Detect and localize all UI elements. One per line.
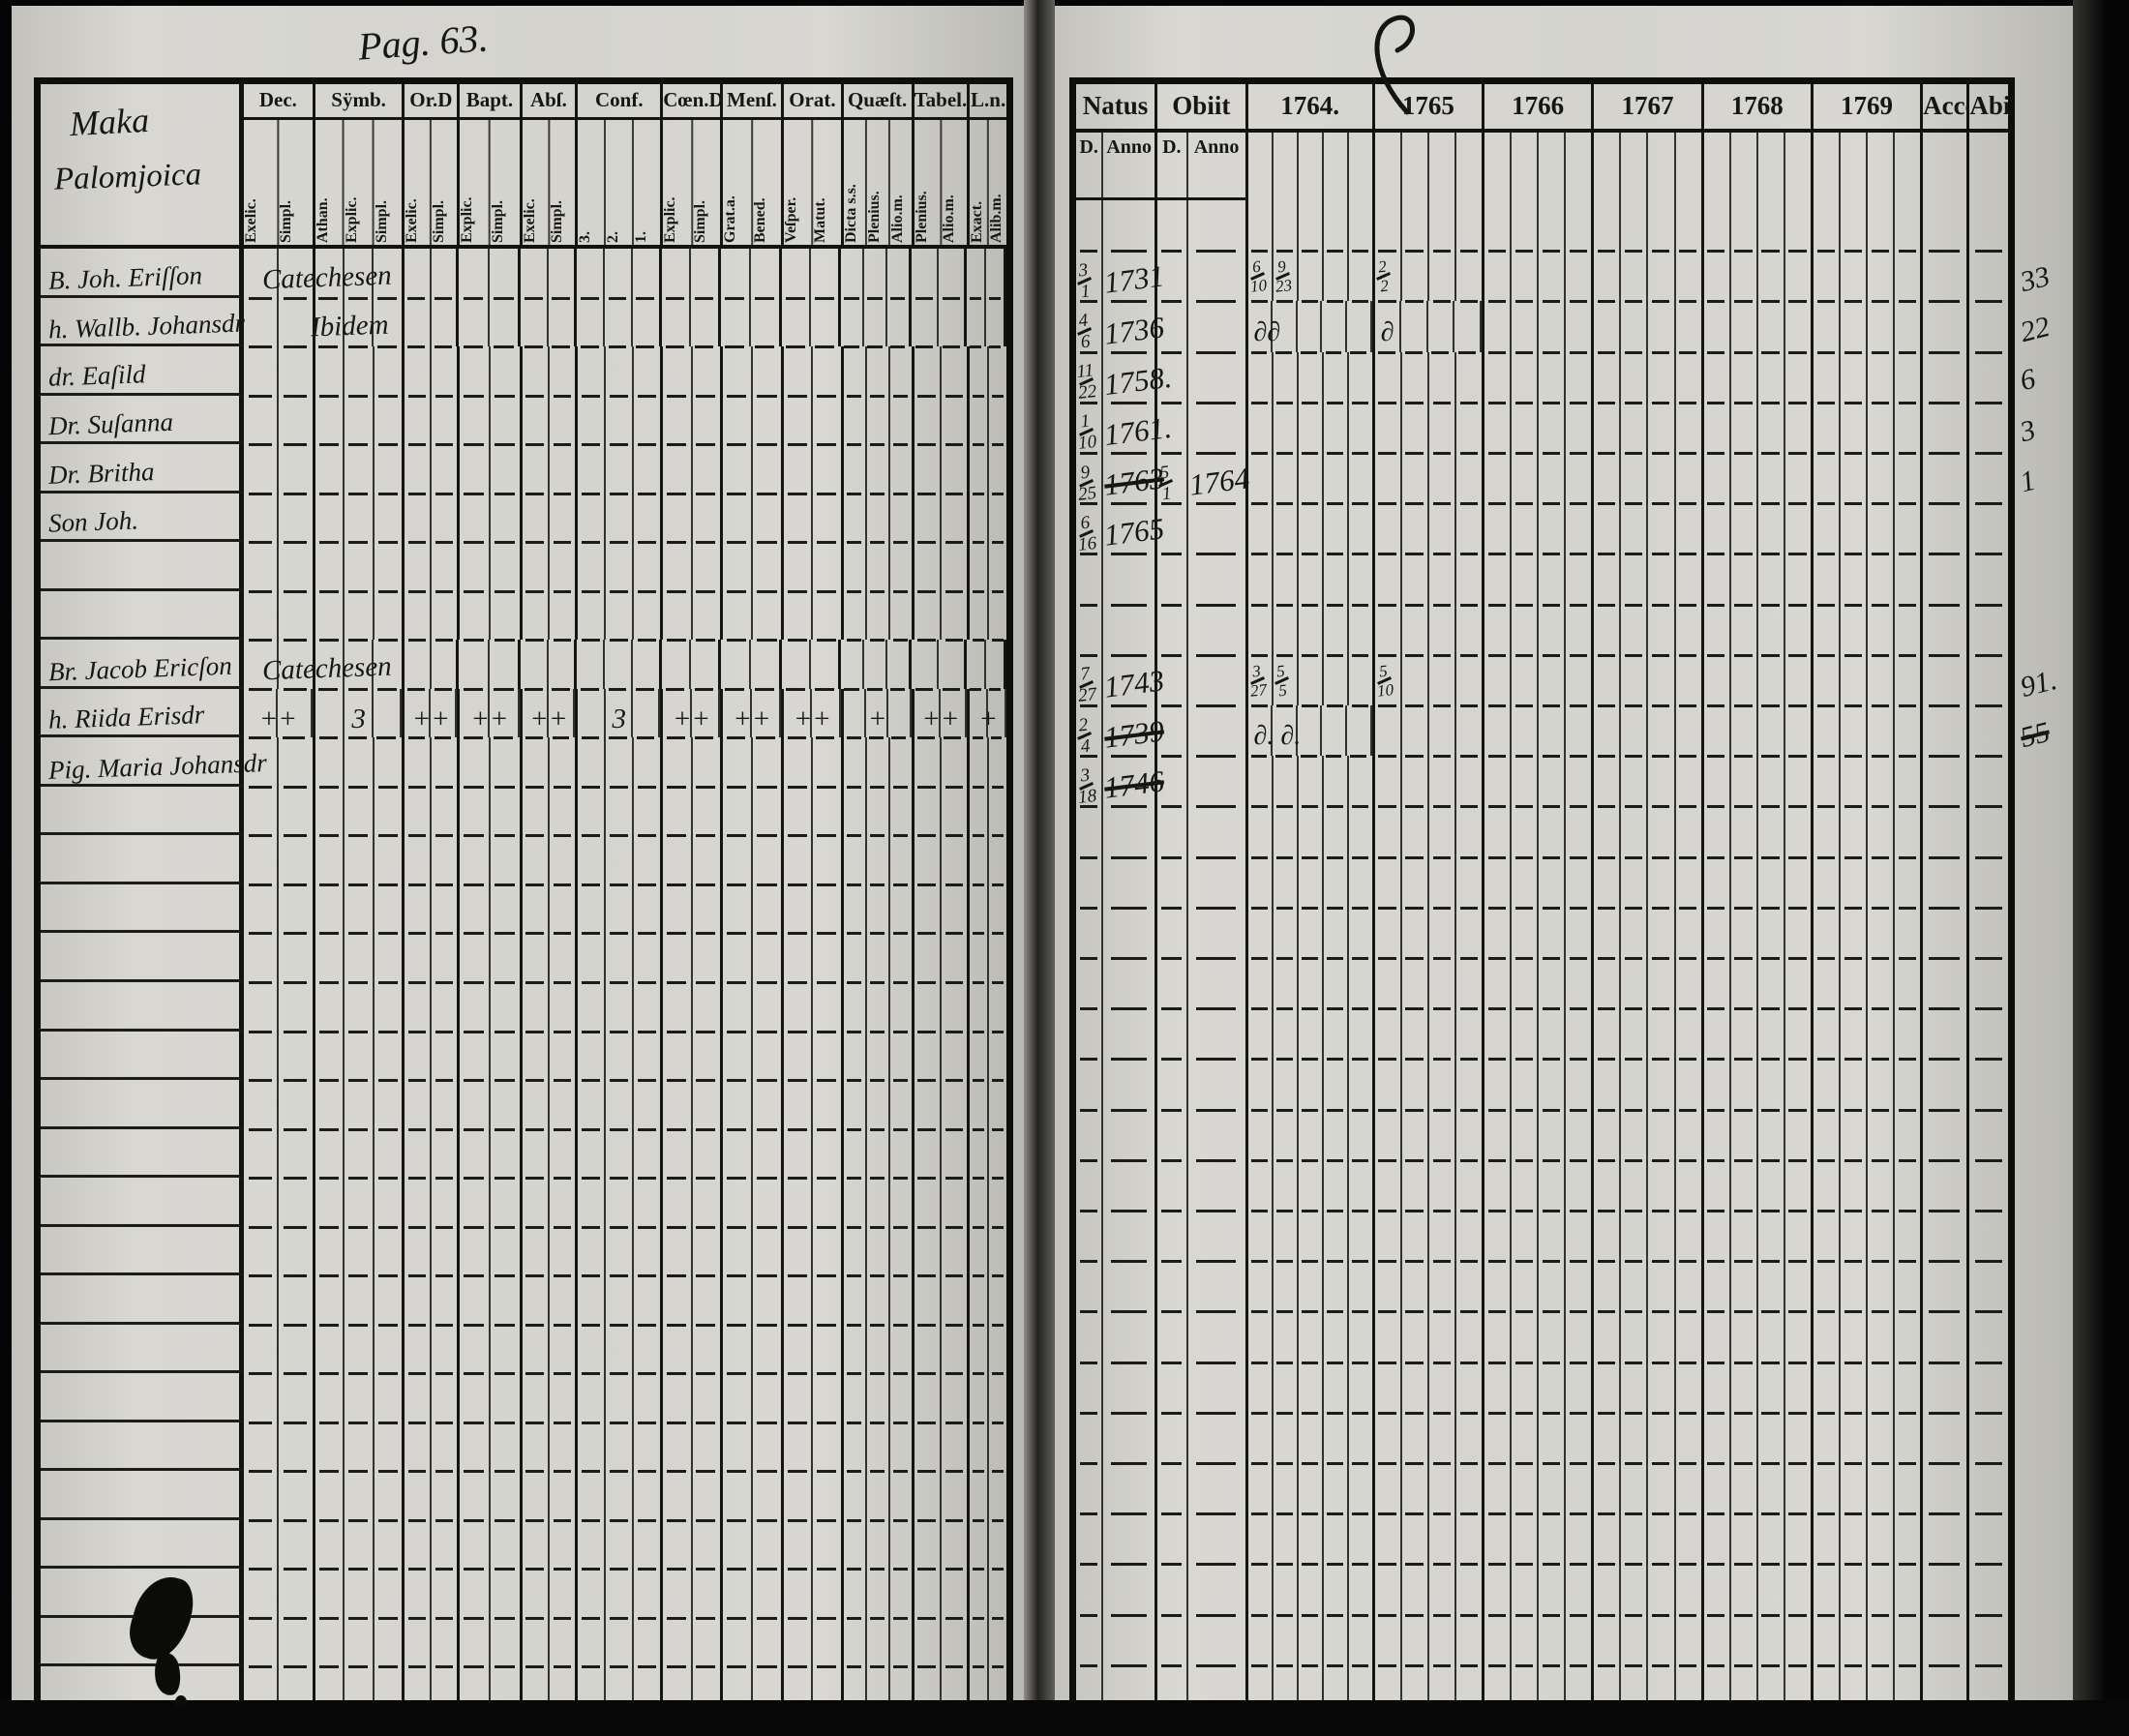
sub-cell	[1969, 1110, 2008, 1160]
group-cell	[1704, 301, 1814, 351]
sub-cell	[1539, 1311, 1566, 1362]
sub-cell	[1731, 655, 1758, 705]
sub-cell	[549, 298, 574, 347]
group-cell	[970, 1471, 1006, 1520]
sub-cell	[345, 787, 375, 836]
sub-cell	[375, 1275, 403, 1325]
group-cell: ++	[244, 689, 315, 738]
sub-cell	[989, 737, 1006, 787]
sub-cell	[1274, 1311, 1299, 1362]
sub-cell	[693, 1080, 720, 1129]
strip-subcell	[1969, 133, 2008, 200]
column-header: Menſ.	[723, 84, 781, 120]
sub-cell	[1484, 200, 1512, 251]
column-sublabel: Simpl.	[277, 120, 312, 245]
table-row	[41, 1471, 1006, 1520]
sub-cell	[1704, 1059, 1731, 1109]
sub-cell	[578, 1129, 606, 1179]
sub-cell	[1188, 1059, 1245, 1109]
sub-cell	[1566, 503, 1591, 554]
sub-cell	[1758, 1110, 1785, 1160]
group-cell	[1076, 1413, 1157, 1463]
sub-cell	[867, 1080, 890, 1129]
sub-cell	[813, 444, 840, 494]
fraction-top: 5	[1159, 464, 1170, 481]
sub-cell	[315, 346, 345, 396]
sub-cell	[915, 1178, 942, 1227]
sub-cell	[753, 1178, 781, 1227]
sub-cell	[606, 787, 634, 836]
column-header: Or.D	[405, 84, 457, 120]
sub-cell	[1814, 806, 1841, 856]
sub-cell: 1739	[1103, 705, 1154, 756]
sub-cell	[970, 542, 989, 591]
group-cell	[967, 249, 1006, 298]
sub-cell	[1785, 1615, 1811, 1665]
sub-cell	[1248, 1362, 1274, 1413]
sub-cell	[693, 1032, 720, 1081]
group-cell	[844, 1178, 915, 1227]
group-cell	[523, 1032, 579, 1081]
group-cell	[460, 444, 522, 494]
sub-cell	[1566, 1463, 1591, 1513]
sub-cell	[723, 982, 753, 1032]
sub-cell	[915, 444, 942, 494]
sub-cell	[1103, 1008, 1154, 1059]
sub-cell	[1375, 1615, 1402, 1665]
sub-cell	[1621, 1311, 1648, 1362]
sub-cell	[663, 1325, 692, 1374]
group-cell	[1594, 1110, 1703, 1160]
sub-cell	[1923, 1564, 1966, 1614]
sub-cell	[1324, 857, 1349, 908]
sub-cell	[1429, 200, 1456, 251]
sub-cell	[1349, 554, 1372, 604]
sub-cell	[1841, 1008, 1868, 1059]
sub-cell	[1512, 503, 1539, 554]
sub-cell	[691, 640, 718, 689]
fraction-bottom: 5	[1277, 682, 1287, 698]
group-cell	[1969, 1008, 2008, 1059]
table-row	[41, 1032, 1006, 1081]
sub-cell	[1566, 200, 1591, 251]
sub-cell	[970, 1569, 989, 1618]
sub-cell	[432, 494, 457, 543]
strip-subcell	[1594, 133, 1621, 200]
group-cell	[405, 737, 460, 787]
group-cell	[784, 396, 844, 445]
sub-cell	[1429, 605, 1456, 655]
ink-blot	[175, 1695, 187, 1709]
sub-cell	[1539, 301, 1566, 351]
sub-cell	[942, 787, 967, 836]
sub-cell	[1704, 301, 1731, 351]
sub-cell	[1429, 1160, 1456, 1211]
sub-cell	[315, 1471, 345, 1520]
sub-cell	[867, 884, 890, 934]
sub-cell	[460, 933, 491, 982]
sub-cell	[523, 1373, 550, 1422]
group-cell	[663, 1520, 723, 1570]
group-cell	[405, 1618, 460, 1667]
sub-cell	[753, 444, 781, 494]
sub-cell	[1841, 1413, 1868, 1463]
sub-cell	[1704, 1211, 1731, 1261]
group-cell	[784, 1227, 844, 1276]
sub-cell	[1566, 554, 1591, 604]
sub-cell	[1785, 1362, 1811, 1413]
sub-cell	[432, 396, 457, 445]
sub-cell	[523, 1422, 550, 1472]
strip-subcell	[1429, 133, 1456, 200]
sub-cell	[1566, 1160, 1591, 1211]
group-cell	[1969, 1463, 2008, 1513]
sub-cell	[1512, 1463, 1539, 1513]
group-cell	[1814, 908, 1923, 958]
sub-cell	[605, 640, 633, 689]
group-cell	[782, 298, 841, 347]
sub-cell	[1484, 1261, 1512, 1311]
group-cell	[970, 396, 1006, 445]
sub-cell	[970, 982, 989, 1032]
sub-cell	[989, 787, 1006, 836]
sub-cell	[844, 591, 867, 641]
sub-cell	[460, 1325, 491, 1374]
sub-cell	[1621, 1513, 1648, 1564]
sub-cell	[1814, 1211, 1841, 1261]
sub-cell	[491, 346, 520, 396]
sub-cell	[1512, 301, 1539, 351]
group-cell	[723, 1178, 784, 1227]
sub-cell	[1299, 806, 1324, 856]
sub-cell	[1484, 301, 1512, 351]
sub-cell	[1566, 857, 1591, 908]
sub-cell	[432, 1422, 457, 1472]
sub-cell	[989, 1520, 1006, 1570]
sub-cell	[1274, 1008, 1299, 1059]
sub-cell	[1375, 453, 1402, 503]
sub-cell	[1429, 1564, 1456, 1614]
sub-cell	[1704, 453, 1731, 503]
sub-cell	[1103, 908, 1154, 958]
sub-cell	[1594, 251, 1621, 301]
sub-cell	[279, 396, 312, 445]
sub-cell	[693, 1227, 720, 1276]
sub-cell	[1103, 1564, 1154, 1614]
group-cell	[1923, 1008, 1969, 1059]
sub-cell	[1188, 806, 1245, 856]
group-cell	[315, 1618, 405, 1667]
sub-cell	[1758, 1362, 1785, 1413]
sub-cell	[784, 737, 813, 787]
row-note: Ibidem	[310, 310, 389, 344]
sub-cell	[1785, 200, 1811, 251]
sub-cell	[1923, 605, 1966, 655]
sub-cell	[942, 1569, 967, 1618]
group-cell	[1076, 806, 1157, 856]
group-cell	[912, 640, 968, 689]
group-cell	[405, 982, 460, 1032]
group-cell	[1923, 301, 1969, 351]
sub-cell	[1248, 453, 1274, 503]
sub-cell	[1103, 1615, 1154, 1665]
sub-cell	[1566, 1311, 1591, 1362]
sub-cell	[1785, 1261, 1811, 1311]
sub-cell	[1375, 1008, 1402, 1059]
sub-cell	[1621, 705, 1648, 756]
group-cell	[1969, 301, 2008, 351]
sub-cell	[549, 249, 574, 298]
group-cell	[782, 249, 841, 298]
group-cell	[663, 737, 723, 787]
group-cell	[663, 1618, 723, 1667]
group-cell	[723, 346, 784, 396]
column-subheaders: Exelic.Simpl.	[405, 120, 457, 245]
table-row: 461736∂∂∂	[1076, 301, 2008, 351]
sub-cell	[1349, 806, 1372, 856]
sub-cell	[375, 1032, 403, 1081]
sub-cell: 1765	[1103, 503, 1154, 554]
sub-cell	[1566, 1413, 1591, 1463]
group-cell	[460, 787, 522, 836]
group-cell	[784, 835, 844, 884]
group-cell	[1969, 705, 2008, 756]
sub-cell	[315, 1373, 345, 1422]
group-cell	[1814, 655, 1923, 705]
sub-cell	[523, 1080, 550, 1129]
sub-cell	[1868, 1362, 1895, 1413]
sub-cell	[491, 737, 520, 787]
sub-cell	[1349, 1513, 1372, 1564]
sub-cell	[375, 591, 403, 641]
sub-cell	[844, 494, 867, 543]
sub-cell	[315, 787, 345, 836]
household-heading-line: Palomjoica	[53, 157, 201, 197]
sub-cell	[1157, 605, 1188, 655]
date-fraction: 610	[1247, 259, 1268, 295]
sub-cell	[550, 1373, 575, 1422]
sub-cell	[1676, 1008, 1701, 1059]
sub-cell	[1484, 1211, 1512, 1261]
group-cell	[1484, 655, 1594, 705]
column-subheaders: Grat.a.Bened.	[723, 120, 781, 245]
sub-cell	[989, 1275, 1006, 1325]
name-cell	[41, 787, 244, 836]
sub-cell	[405, 298, 432, 347]
group-cell	[244, 1275, 315, 1325]
sub-cell	[721, 640, 751, 689]
sub-cell	[405, 249, 432, 298]
sub-cell	[1429, 1211, 1456, 1261]
table-row	[41, 884, 1006, 934]
sub-cell	[1456, 1564, 1482, 1614]
sub-cell	[432, 1129, 457, 1179]
sub-cell	[813, 1569, 840, 1618]
sub-cell	[1157, 908, 1188, 958]
sub-cell	[1157, 958, 1188, 1008]
group-cell	[1076, 1362, 1157, 1413]
sub-cell	[606, 494, 634, 543]
sub-cell	[844, 1471, 867, 1520]
sub-cell	[1456, 1513, 1482, 1564]
strip-subcell	[1402, 133, 1429, 200]
sub-cell	[1731, 1110, 1758, 1160]
sub-cell	[1429, 453, 1456, 503]
sub-cell	[1895, 1513, 1920, 1564]
sub-cell	[1322, 705, 1347, 756]
sub-cell	[890, 1325, 912, 1374]
sub-cell	[634, 542, 660, 591]
sub-cell: 1743	[1103, 655, 1154, 705]
sub-cell	[1923, 1059, 1966, 1109]
group-cell	[1248, 1211, 1375, 1261]
group-cell	[460, 396, 522, 445]
sub-cell	[753, 542, 781, 591]
strip-group	[1594, 133, 1703, 200]
group-cell: ++	[460, 689, 522, 738]
group-cell	[784, 346, 844, 396]
strip-subcell	[1248, 133, 1274, 200]
group-cell	[1157, 1261, 1247, 1311]
sub-cell	[405, 1569, 432, 1618]
sub-cell	[315, 1569, 345, 1618]
table-row	[1076, 908, 2008, 958]
sub-cell	[1539, 605, 1566, 655]
column-sublabel: Explic.	[460, 120, 489, 245]
sub-cell	[491, 835, 520, 884]
sub-cell	[753, 1032, 781, 1081]
sub-cell	[753, 346, 781, 396]
group-cell	[1157, 605, 1247, 655]
sub-cell	[1402, 503, 1429, 554]
sub-cell	[1969, 554, 2008, 604]
group-cell	[523, 982, 579, 1032]
group-cell	[1814, 352, 1923, 403]
sub-cell	[345, 346, 375, 396]
sub-cell	[753, 1422, 781, 1472]
sub-cell	[345, 591, 375, 641]
sub-cell	[1188, 200, 1245, 251]
sub-cell	[1157, 1008, 1188, 1059]
sub-cell	[1648, 756, 1675, 806]
sub-cell	[721, 249, 751, 298]
sub-cell	[942, 933, 967, 982]
sub-cell	[1429, 958, 1456, 1008]
table-row	[41, 835, 1006, 884]
group-cell	[663, 835, 723, 884]
sub-cell	[1484, 1059, 1512, 1109]
sub-cell	[315, 591, 345, 641]
group-cell	[578, 346, 663, 396]
sub-cell	[1248, 857, 1274, 908]
sub-cell	[345, 1080, 375, 1129]
sub-cell	[523, 494, 550, 543]
sub-cell	[1731, 251, 1758, 301]
sub-cell	[1456, 605, 1482, 655]
group-cell	[723, 542, 784, 591]
sub-cell	[1402, 1311, 1429, 1362]
sub-cell	[375, 494, 403, 543]
sub-cell	[1324, 1362, 1349, 1413]
sub-cell	[279, 542, 312, 591]
sub-cell	[1814, 503, 1841, 554]
sub-cell	[549, 640, 574, 689]
group-cell	[1969, 1059, 2008, 1109]
group-cell	[460, 1129, 522, 1179]
sub-cell	[1402, 1362, 1429, 1413]
group-cell	[1157, 1311, 1247, 1362]
column-group-header: Bapt.Explic.Simpl.	[460, 84, 522, 245]
sub-cell	[1103, 806, 1154, 856]
group-cell	[915, 787, 971, 836]
sub-cell	[405, 787, 432, 836]
sub-cell	[1814, 605, 1841, 655]
group-cell	[1076, 554, 1157, 604]
sub-cell	[460, 1373, 491, 1422]
sub-cell	[1188, 756, 1245, 806]
group-cell	[721, 298, 782, 347]
sub-cell	[1841, 1362, 1868, 1413]
sub-cell	[662, 298, 691, 347]
sub-cell	[1594, 352, 1621, 403]
sub-cell	[1895, 554, 1920, 604]
column-group-header: Dec.Exelic.Simpl.	[244, 84, 315, 245]
sub-cell	[1375, 1261, 1402, 1311]
sub-cell	[1868, 503, 1895, 554]
sub-cell: 1761.	[1103, 403, 1154, 453]
group-cell	[1076, 908, 1157, 958]
group-cell	[578, 1422, 663, 1472]
sub-cell	[1621, 1261, 1648, 1311]
sub-cell	[375, 1422, 403, 1472]
sub-cell	[1402, 1463, 1429, 1513]
sub-cell	[782, 640, 811, 689]
group-cell	[970, 933, 1006, 982]
group-cell	[1969, 1413, 2008, 1463]
group-cell	[1969, 857, 2008, 908]
sub-cell	[1429, 1463, 1456, 1513]
group-cell	[1704, 958, 1814, 1008]
group-cell	[662, 249, 721, 298]
sub-cell	[970, 1032, 989, 1081]
communion-mark: ++	[915, 703, 968, 735]
sub-cell	[1512, 403, 1539, 453]
sub-cell	[1895, 958, 1920, 1008]
sub-cell	[1484, 352, 1512, 403]
sub-cell	[634, 1422, 660, 1472]
sub-cell	[1274, 1362, 1299, 1413]
strip-sublabel: D.	[1157, 133, 1188, 197]
sub-cell	[890, 1227, 912, 1276]
group-cell	[244, 884, 315, 934]
sub-cell	[1731, 352, 1758, 403]
group-cell	[663, 542, 723, 591]
sub-cell	[1895, 705, 1920, 756]
sub-cell	[1456, 958, 1482, 1008]
group-cell	[523, 1178, 579, 1227]
sub-cell	[693, 1325, 720, 1374]
group-cell	[1484, 1110, 1594, 1160]
strip-group: D.Anno	[1157, 133, 1247, 200]
sub-cell	[1785, 453, 1811, 503]
group-cell	[1248, 1413, 1375, 1463]
sub-cell	[841, 640, 864, 689]
group-cell	[1157, 1413, 1247, 1463]
group-cell: 3	[578, 689, 663, 738]
group-cell	[244, 444, 315, 494]
sub-cell	[606, 1569, 634, 1618]
group-cell	[1484, 1311, 1594, 1362]
